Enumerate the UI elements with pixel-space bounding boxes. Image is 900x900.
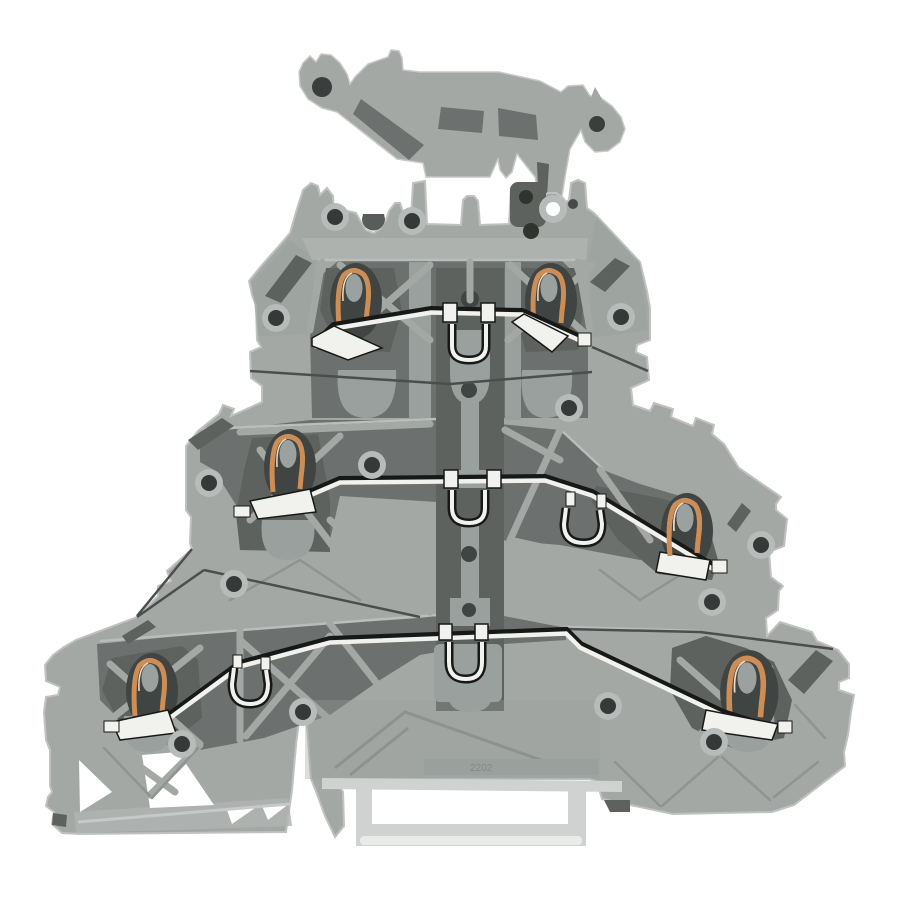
svg-text:2202: 2202 [470,763,493,774]
